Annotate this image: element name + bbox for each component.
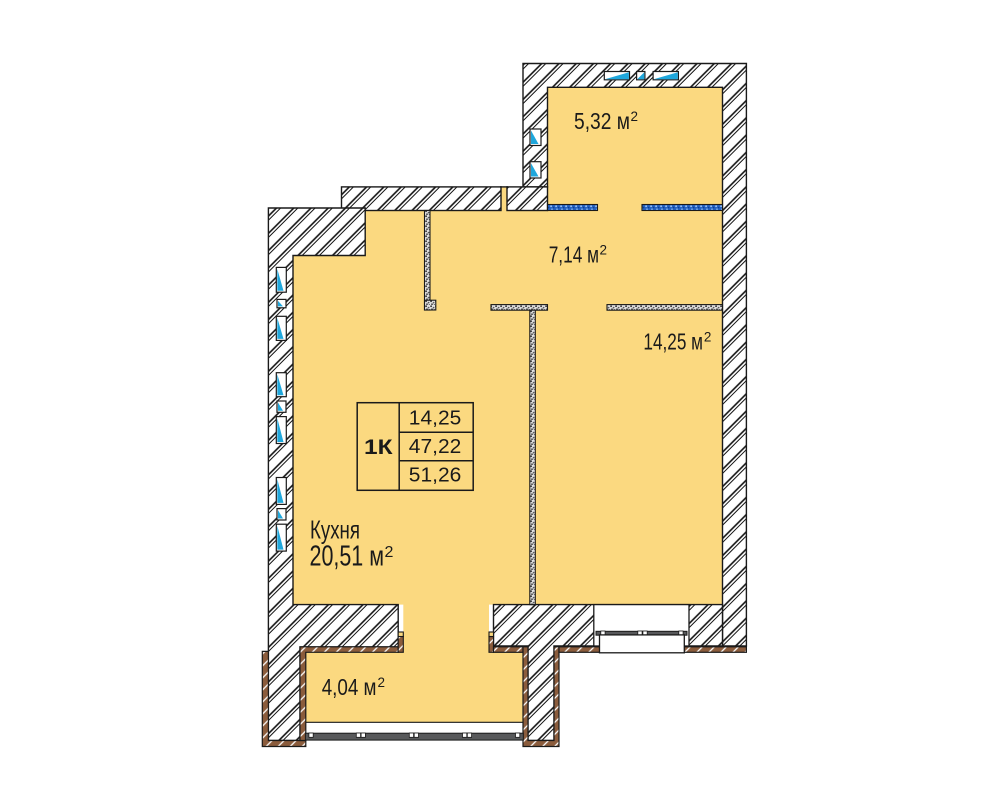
svg-text:1К: 1К	[364, 436, 393, 459]
svg-text:2: 2	[378, 675, 386, 690]
svg-text:14,25: 14,25	[409, 407, 462, 429]
svg-text:2: 2	[385, 544, 394, 561]
svg-text:51,26: 51,26	[409, 464, 462, 486]
svg-text:47,22: 47,22	[409, 436, 462, 458]
svg-text:7,14 м: 7,14 м	[549, 242, 599, 268]
svg-text:14,25 м: 14,25 м	[643, 329, 703, 355]
svg-text:20,51 м: 20,51 м	[310, 541, 385, 573]
svg-text:2: 2	[631, 109, 639, 124]
svg-text:4,04 м: 4,04 м	[322, 674, 377, 700]
svg-text:2: 2	[600, 243, 608, 258]
svg-text:2: 2	[704, 330, 712, 345]
svg-text:5,32 м: 5,32 м	[574, 108, 630, 134]
